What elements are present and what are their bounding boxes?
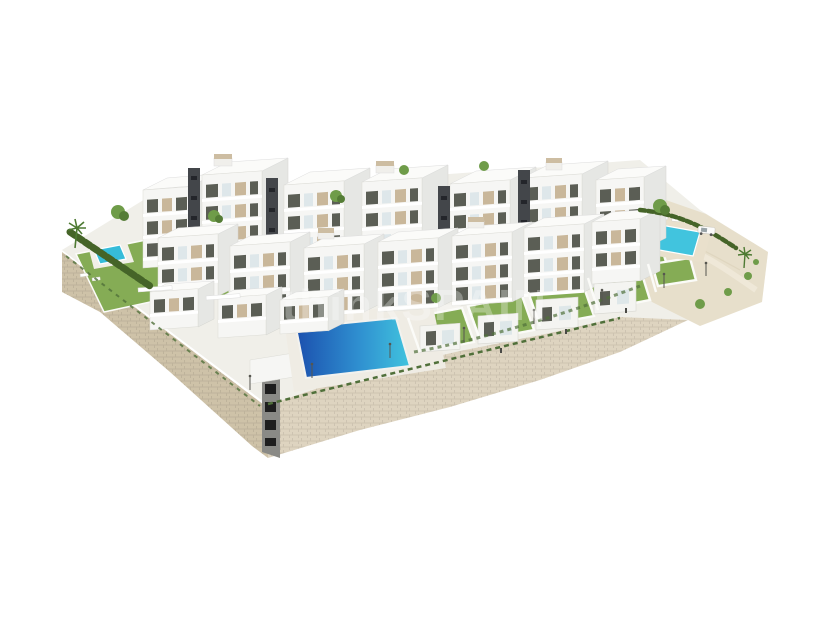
bush — [753, 259, 759, 265]
tree — [399, 165, 409, 175]
tree — [479, 161, 489, 171]
aerial-render: thinkSPAIN — [0, 0, 830, 623]
bush — [724, 288, 732, 296]
bush — [744, 272, 752, 280]
watermark: thinkSPAIN — [282, 281, 548, 330]
corner-stair-tower — [262, 372, 280, 458]
bush — [695, 299, 705, 309]
render-canvas: thinkSPAIN — [0, 0, 830, 623]
